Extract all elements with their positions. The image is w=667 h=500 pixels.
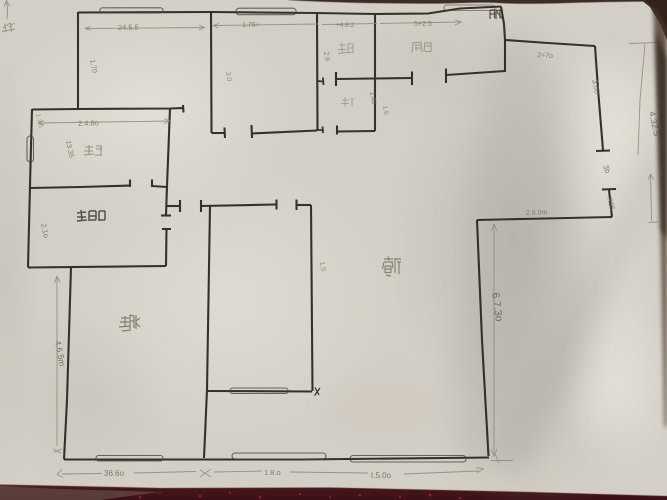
svg-text:5+2.5: 5+2.5 xyxy=(414,21,432,28)
svg-text:t.5.0o: t.5.0o xyxy=(371,471,392,480)
svg-text:+4.8.2: +4.8.2 xyxy=(336,22,355,29)
svg-text:1.8.o: 1.8.o xyxy=(264,468,281,477)
svg-text:24.5.5: 24.5.5 xyxy=(118,23,139,32)
svg-text:1.76+: 1.76+ xyxy=(242,22,260,29)
svg-text:3.0: 3.0 xyxy=(224,71,232,82)
svg-text:2.6.0m: 2.6.0m xyxy=(526,209,548,217)
svg-text:36.6o: 36.6o xyxy=(104,469,125,478)
svg-text:2+7o: 2+7o xyxy=(537,52,553,60)
svg-text:2.4.8o: 2.4.8o xyxy=(78,118,99,128)
